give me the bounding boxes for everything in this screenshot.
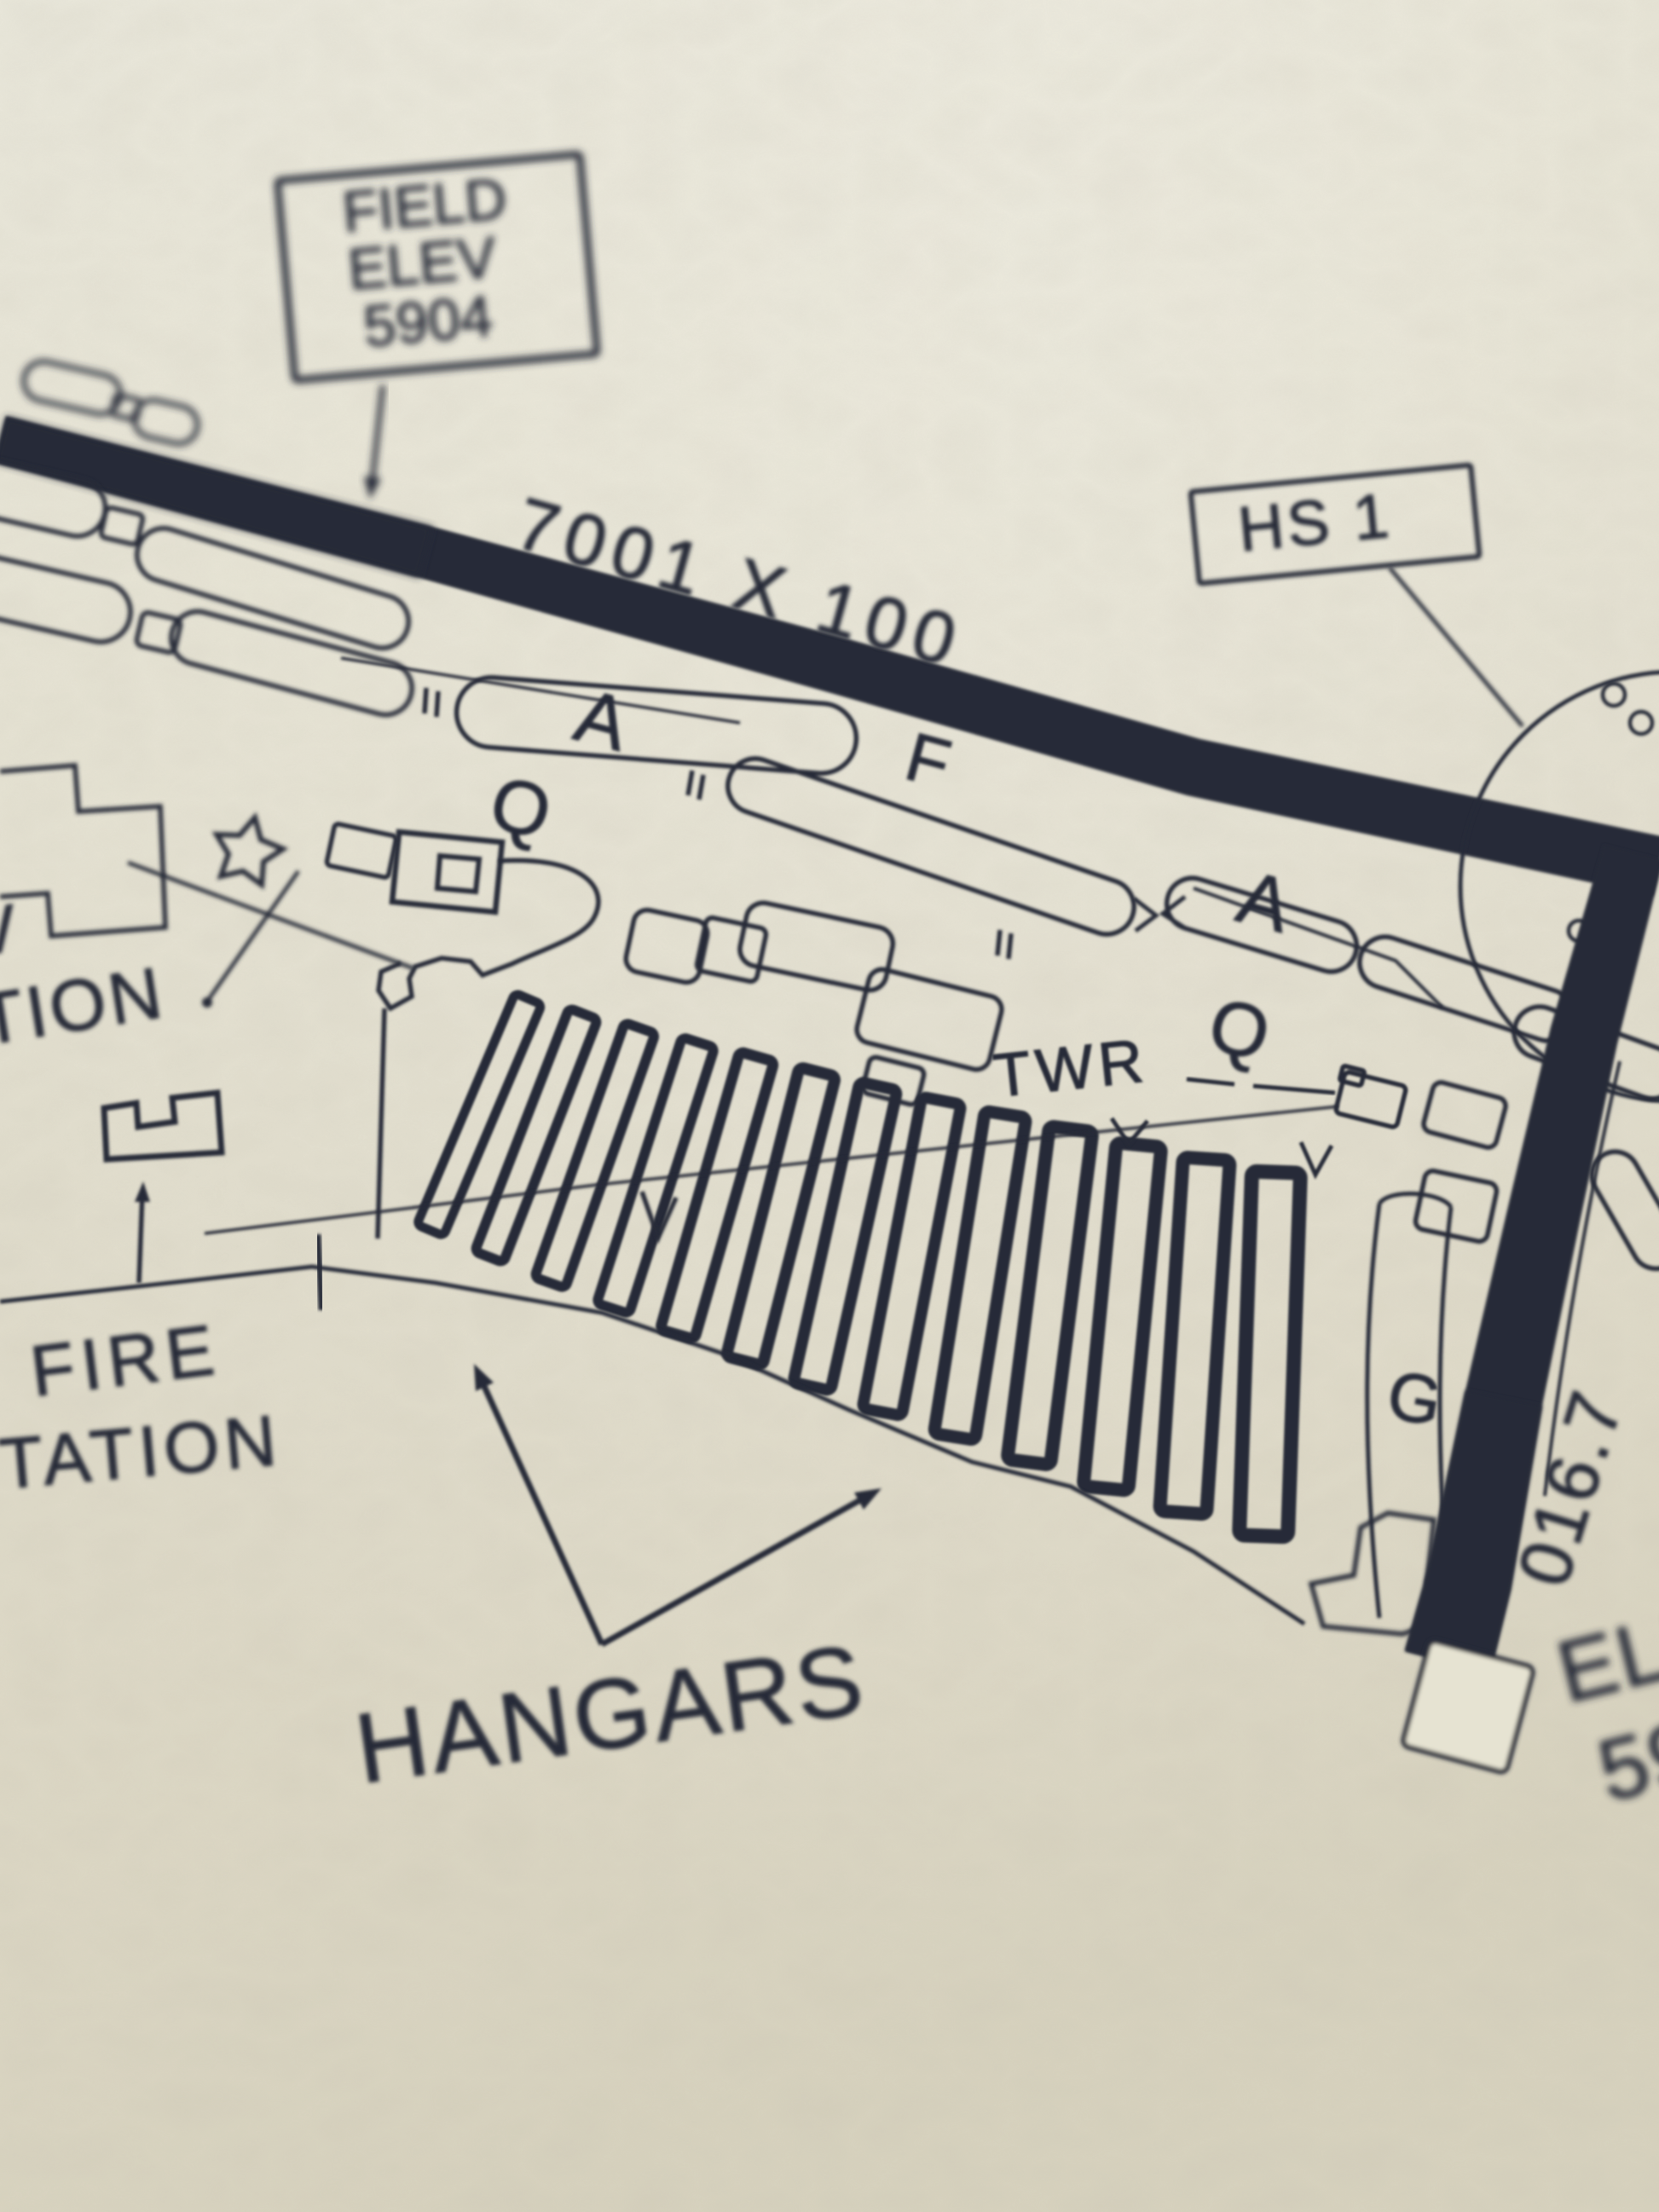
svg-text:5904: 5904 [361,284,494,360]
svg-text:HS 1: HS 1 [1235,480,1396,565]
